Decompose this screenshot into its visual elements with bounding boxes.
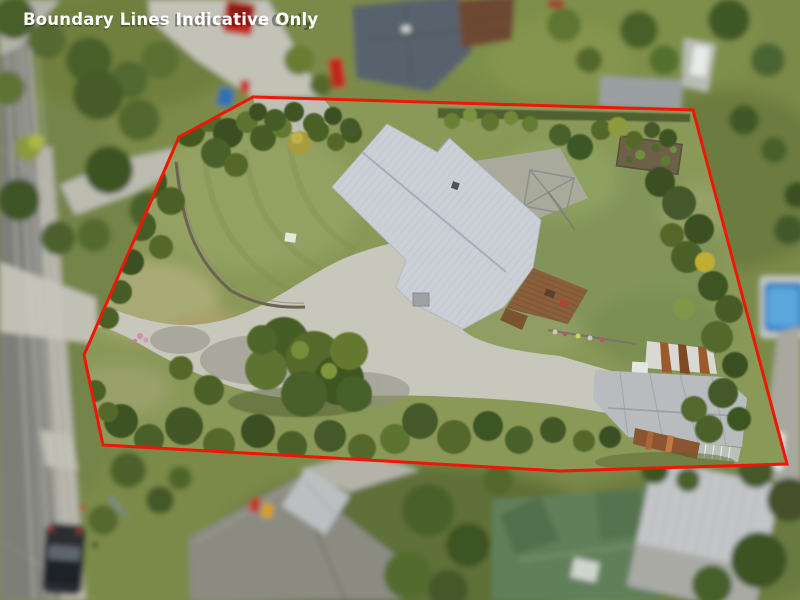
pool-water	[768, 288, 798, 326]
lawn-table	[284, 232, 296, 242]
red-bin-top	[240, 80, 250, 93]
parked-car	[42, 523, 87, 596]
pedestrian	[92, 542, 98, 548]
watermark-text: Boundary Lines Indicative Only	[23, 10, 318, 29]
property-interior	[70, 97, 787, 472]
pergola	[458, 0, 515, 48]
aerial-photo: Boundary Lines Indicative Only Boundary …	[0, 0, 800, 600]
red-object-edge	[548, 0, 564, 8]
aerial-photo-canvas: Boundary Lines Indicative Only Boundary …	[0, 0, 800, 600]
watermark: Boundary Lines Indicative Only Boundary …	[23, 10, 318, 31]
heat-pump-unit	[413, 293, 429, 306]
pedestrian-red	[79, 504, 85, 510]
neighbour-shed	[599, 76, 682, 110]
skylight	[402, 26, 410, 32]
white-trailer	[632, 362, 649, 374]
